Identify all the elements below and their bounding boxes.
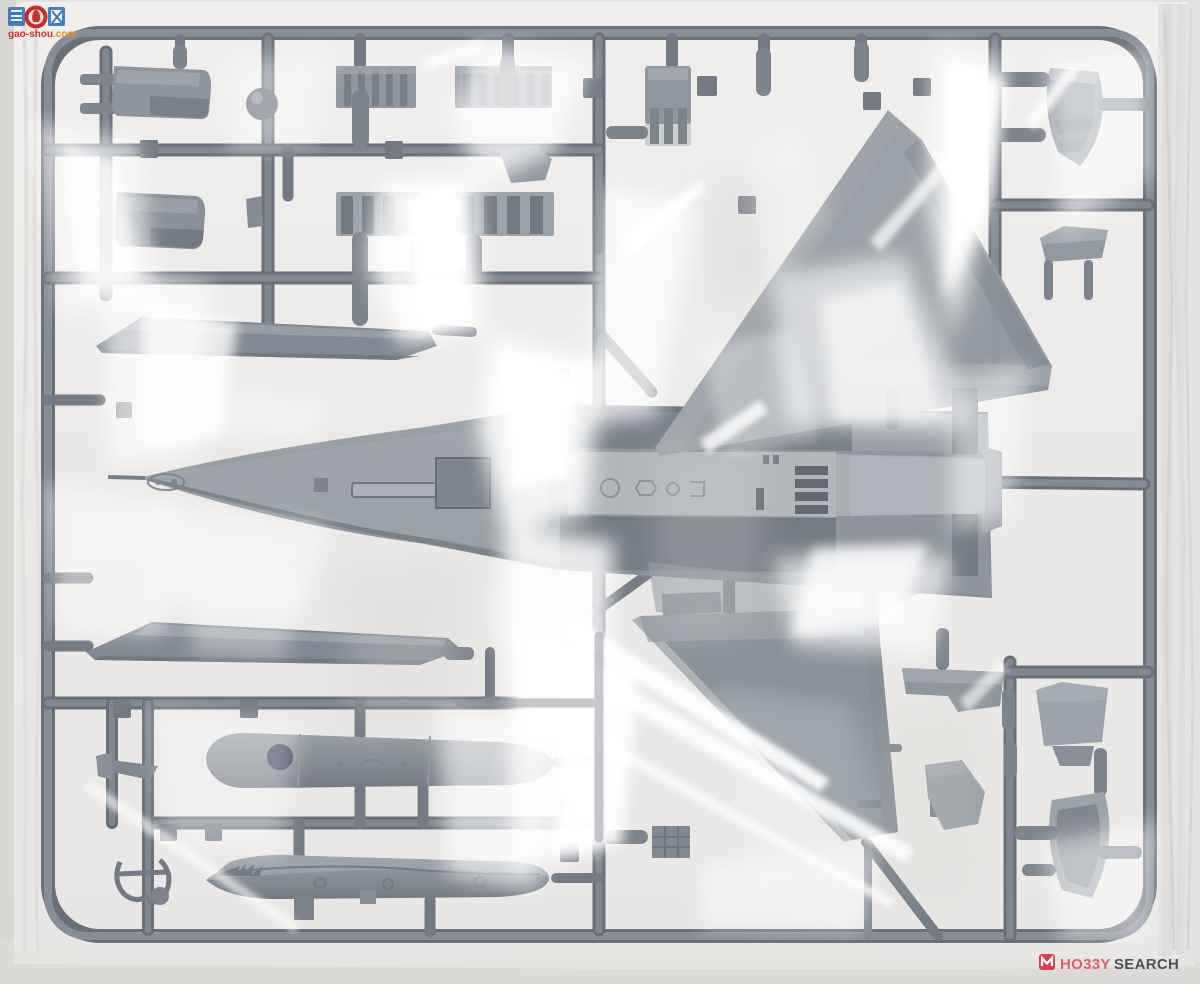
svg-text:HO33Y: HO33Y — [1060, 956, 1111, 973]
svg-text:SEARCH: SEARCH — [1114, 956, 1179, 973]
svg-text:gao-shou.com: gao-shou.com — [8, 29, 76, 40]
